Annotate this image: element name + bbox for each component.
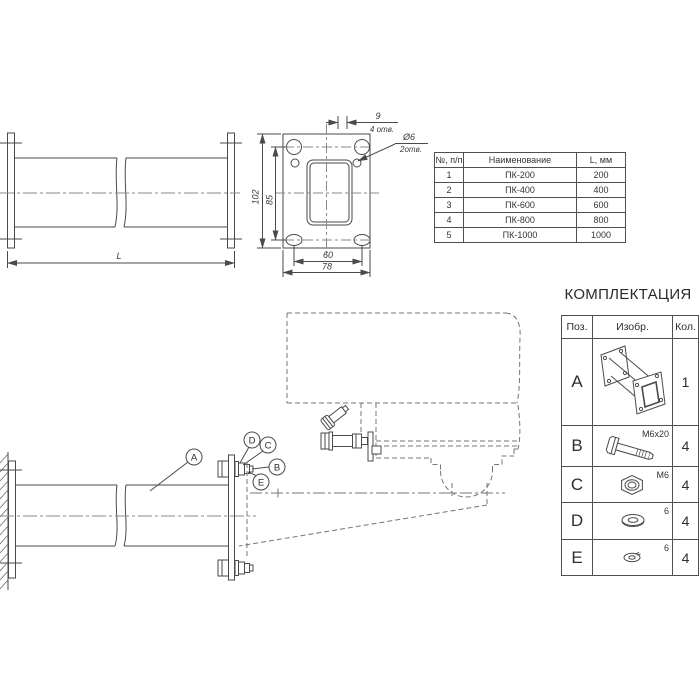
kit-col-image: Изобр. [593,316,673,339]
parts-col-name: Наименование [464,153,577,168]
bolt-size-label: M6x20 [642,429,669,439]
kit-qty: 1 [673,339,699,426]
camera-housing-outline [239,313,520,557]
kit-image-cell: M6 [593,467,673,503]
parts-row: 3 ПК-600 600 [435,198,626,213]
kit-row-c: C M6 4 [562,467,699,503]
parts-num: 4 [435,213,464,228]
callout-b: B [274,463,280,474]
hex-nut-icon [615,471,651,499]
parts-row: 1 ПК-200 200 [435,168,626,183]
kit-col-qty: Кол. [673,316,699,339]
parts-name: ПК-1000 [464,228,577,243]
kit-pos: A [562,339,593,426]
washer-size-label: 6 [664,506,669,516]
parts-len: 1000 [577,228,626,243]
parts-len: 200 [577,168,626,183]
parts-num: 5 [435,228,464,243]
kit-pos: D [562,503,593,540]
kit-image-cell: M6x20 [593,426,673,467]
kit-col-pos: Поз. [562,316,593,339]
parts-num: 3 [435,198,464,213]
kit-row-b: B M6x20 4 [562,426,699,467]
parts-num: 1 [435,168,464,183]
parts-col-len: L, мм [577,153,626,168]
housing-fasteners [320,402,381,461]
parts-col-num: №, п/п [435,153,464,168]
parts-len: 800 [577,213,626,228]
kit-table: Поз. Изобр. Кол. A 1 B [561,315,699,576]
clamp-bolt [321,432,368,450]
parts-row: 4 ПК-800 800 [435,213,626,228]
parts-name: ПК-600 [464,198,577,213]
callout-a: A [191,453,198,464]
nut-size-label: M6 [656,470,669,480]
parts-len: 400 [577,183,626,198]
callout-d: D [249,436,256,447]
kit-image-cell: 6 [593,540,673,576]
kit-qty: 4 [673,540,699,576]
kit-row-a: A 1 [562,339,699,426]
parts-header-row: №, п/п Наименование L, мм [435,153,626,168]
wing-screw [320,402,351,430]
kit-image-cell: 6 [593,503,673,540]
callout-c: C [265,441,272,452]
flat-washer-icon [617,511,649,531]
kit-pos: B [562,426,593,467]
drawing-sheet: L 102 85 [0,0,700,700]
parts-row: 2 ПК-400 400 [435,183,626,198]
spring-washer-size-label: 6 [664,543,669,553]
kit-qty: 4 [673,426,699,467]
wall-hatch [0,454,8,589]
parts-len: 600 [577,198,626,213]
dim-hole-dia: Ø6 [402,132,415,142]
parts-num: 2 [435,183,464,198]
parts-name: ПК-400 [464,183,577,198]
note-4-holes: 4 отв. [370,125,394,134]
dim-height-85: 85 [265,194,275,205]
parts-name: ПК-800 [464,213,577,228]
parts-row: 5 ПК-1000 1000 [435,228,626,243]
dim-length-L: L [116,251,121,261]
tube-side-view [0,133,242,268]
flanged-duct-isometric-icon [596,341,670,423]
bolt-set-bottom [218,560,253,576]
note-2-holes: 2отв. [399,145,422,154]
parts-name: ПК-200 [464,168,577,183]
dim-height-102: 102 [251,189,261,204]
dim-width-60: 60 [323,250,333,260]
kit-qty: 4 [673,503,699,540]
kit-row-d: D 6 4 [562,503,699,540]
kit-row-e: E 6 4 [562,540,699,576]
dim-slot-9: 9 [375,111,380,121]
assembly-side-view [0,447,269,590]
kit-title: КОМПЛЕКТАЦИЯ [558,286,698,303]
kit-pos: C [562,467,593,503]
callout-e: E [258,478,264,489]
bolt-set-top [218,461,253,477]
parts-table: №, п/п Наименование L, мм 1 ПК-200 200 2… [434,152,626,243]
kit-qty: 4 [673,467,699,503]
kit-pos: E [562,540,593,576]
kit-header-row: Поз. Изобр. Кол. [562,316,699,339]
dim-width-78: 78 [322,262,332,272]
kit-image-cell [593,339,673,426]
spring-washer-icon [620,549,646,566]
